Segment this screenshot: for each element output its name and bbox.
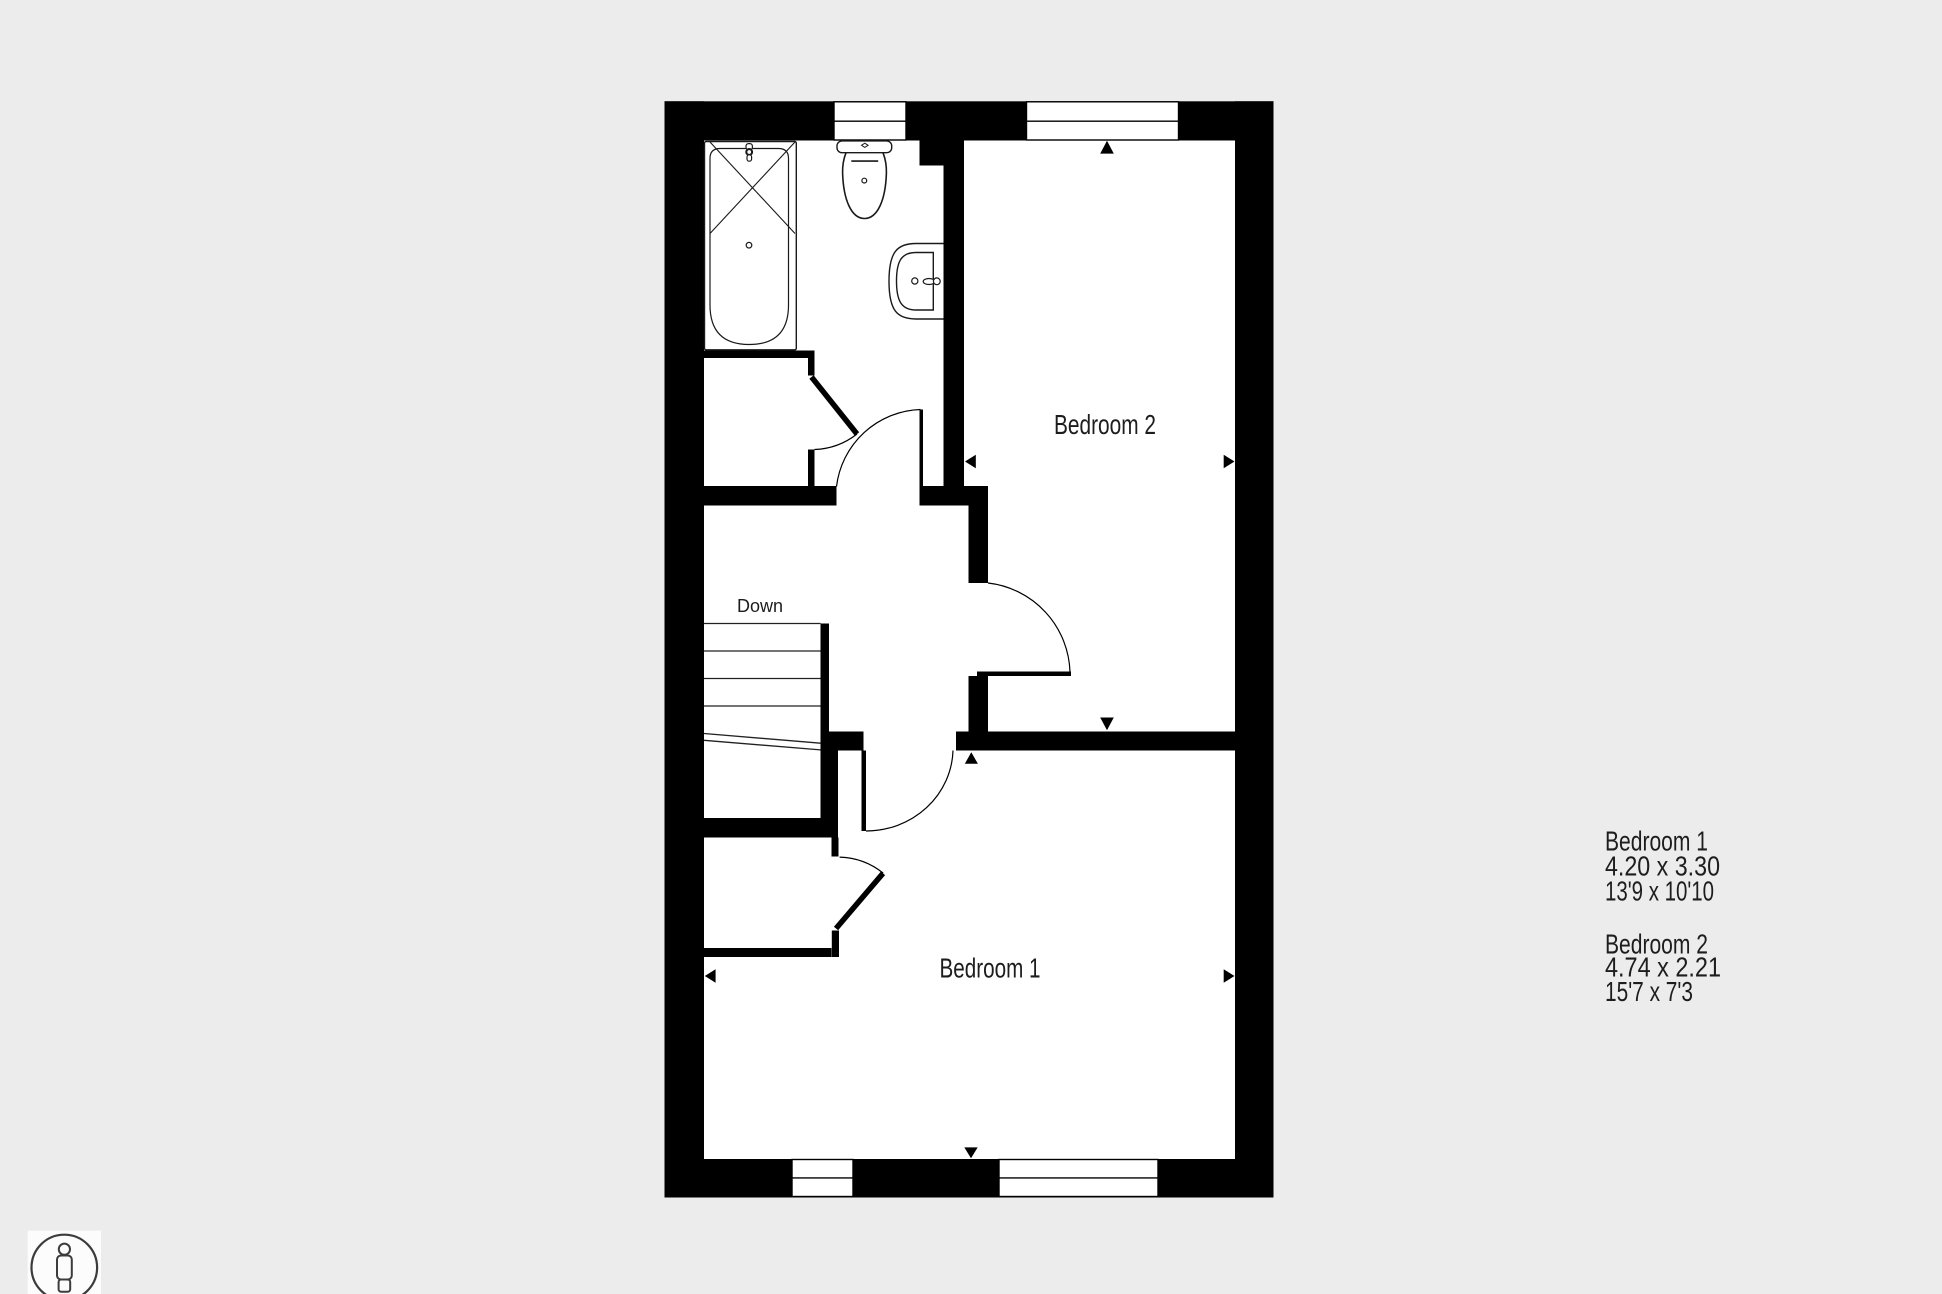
svg-text:13'9 x 10'10: 13'9 x 10'10: [1605, 875, 1714, 906]
svg-text:Bedroom 1: Bedroom 1: [940, 953, 1041, 984]
svg-text:Bedroom 2: Bedroom 2: [1054, 409, 1156, 440]
svg-text:Down: Down: [737, 596, 783, 616]
svg-text:15'7 x 7'3: 15'7 x 7'3: [1605, 976, 1693, 1007]
